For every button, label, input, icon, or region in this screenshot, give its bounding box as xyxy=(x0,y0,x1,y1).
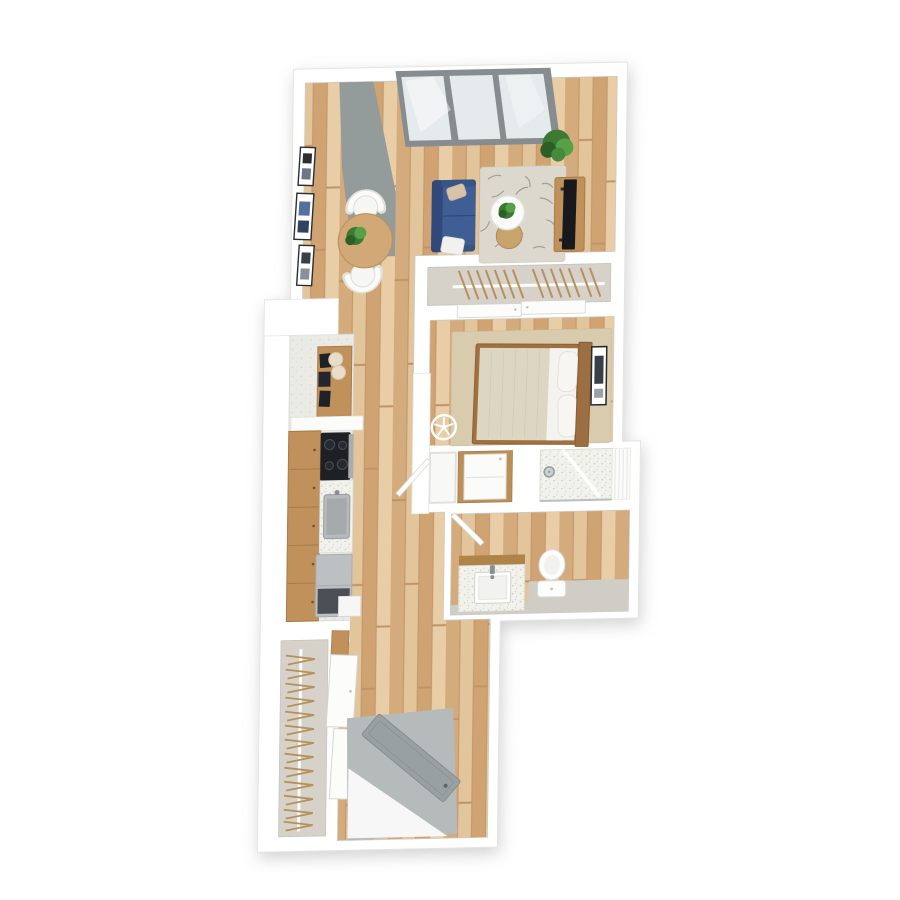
wall-art-frame xyxy=(298,147,315,185)
floor-plan xyxy=(257,62,645,853)
counter-stool xyxy=(331,365,345,379)
bedroom-wall-stub xyxy=(412,373,431,513)
wall-art-frame xyxy=(297,245,315,285)
bed xyxy=(472,342,592,447)
floor-plan-canvas xyxy=(0,0,900,900)
skylight-window xyxy=(394,67,561,147)
bedroom xyxy=(431,328,611,449)
wall-art-frame xyxy=(294,193,314,240)
bedroom-wall-art xyxy=(591,347,607,405)
vanity-backsplash xyxy=(459,554,525,565)
kitchen-sideboard xyxy=(317,346,352,417)
toilet xyxy=(538,549,567,597)
faucet xyxy=(490,565,495,579)
bed-pillow xyxy=(558,395,577,438)
sofa xyxy=(431,179,476,256)
white-counter xyxy=(291,416,363,432)
wall-bump xyxy=(264,298,338,336)
sliding-door-panel xyxy=(326,655,358,728)
end-cabinet xyxy=(338,596,360,616)
white-throw xyxy=(440,236,465,255)
counter-stool xyxy=(329,352,343,366)
floor-plan-svg xyxy=(0,0,900,900)
laundry-closet xyxy=(458,451,513,503)
kitchen-sink-counter xyxy=(319,480,353,553)
bed-pillow xyxy=(557,351,579,392)
cooktop xyxy=(320,432,354,481)
linen-closet-door xyxy=(430,453,456,503)
vanity xyxy=(458,554,525,611)
